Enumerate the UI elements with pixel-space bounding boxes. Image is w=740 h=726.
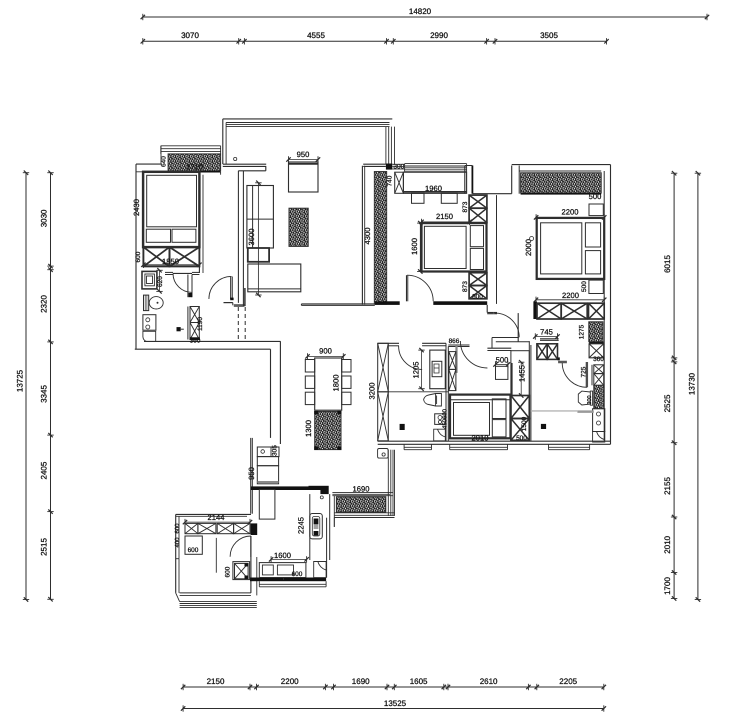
svg-text:4300: 4300	[363, 228, 372, 245]
svg-text:2200: 2200	[562, 208, 579, 217]
svg-text:1960: 1960	[425, 184, 442, 193]
svg-text:2150: 2150	[436, 212, 453, 221]
svg-text:2430: 2430	[132, 199, 141, 216]
svg-text:1455: 1455	[518, 365, 527, 382]
svg-text:740: 740	[387, 175, 394, 186]
svg-text:2000: 2000	[524, 239, 533, 256]
svg-text:2200: 2200	[281, 677, 299, 686]
svg-text:2405: 2405	[40, 461, 49, 479]
svg-text:620: 620	[157, 276, 164, 287]
svg-text:2010: 2010	[663, 535, 672, 553]
svg-text:1700: 1700	[663, 577, 672, 595]
svg-text:600: 600	[188, 547, 199, 554]
svg-text:500: 500	[516, 435, 527, 442]
svg-text:360: 360	[190, 338, 201, 345]
svg-text:450: 450	[441, 418, 448, 429]
svg-text:13730: 13730	[688, 372, 697, 395]
svg-text:2010: 2010	[472, 434, 489, 443]
svg-text:3345: 3345	[40, 385, 49, 403]
svg-text:305: 305	[272, 445, 279, 456]
svg-text:1800: 1800	[332, 375, 341, 392]
svg-text:3600: 3600	[247, 229, 256, 246]
svg-text:3070: 3070	[181, 31, 199, 40]
svg-text:600: 600	[441, 408, 448, 419]
svg-text:1600: 1600	[274, 551, 291, 560]
svg-text:360: 360	[593, 356, 604, 363]
svg-text:2245: 2245	[297, 517, 306, 534]
svg-text:1500: 1500	[521, 416, 528, 431]
svg-text:2515: 2515	[40, 538, 49, 556]
svg-text:873: 873	[462, 201, 469, 212]
svg-text:600: 600	[225, 566, 232, 577]
svg-text:3505: 3505	[540, 31, 558, 40]
svg-text:1275: 1275	[579, 324, 586, 339]
svg-text:800: 800	[472, 294, 483, 301]
svg-text:1205: 1205	[412, 362, 421, 379]
svg-text:2144: 2144	[208, 513, 225, 522]
svg-text:1710: 1710	[186, 163, 203, 172]
svg-text:2990: 2990	[430, 31, 448, 40]
svg-text:2320: 2320	[40, 295, 49, 313]
svg-text:900: 900	[319, 347, 332, 356]
svg-text:950: 950	[247, 467, 256, 480]
svg-text:2205: 2205	[559, 677, 577, 686]
svg-text:2610: 2610	[480, 677, 498, 686]
svg-text:600: 600	[292, 571, 303, 578]
svg-text:500: 500	[589, 192, 602, 201]
svg-text:745: 745	[540, 328, 553, 337]
svg-text:1300: 1300	[304, 420, 313, 437]
svg-text:2150: 2150	[207, 677, 225, 686]
svg-text:600: 600	[135, 251, 142, 262]
svg-text:950: 950	[297, 150, 310, 159]
svg-text:1600: 1600	[410, 238, 419, 255]
svg-text:500: 500	[496, 356, 509, 365]
svg-text:1690: 1690	[352, 677, 370, 686]
svg-text:1690: 1690	[353, 485, 370, 494]
svg-text:3200: 3200	[368, 383, 377, 400]
svg-text:873: 873	[462, 281, 469, 292]
svg-text:1190: 1190	[197, 317, 204, 331]
svg-text:2525: 2525	[663, 394, 672, 412]
svg-text:500: 500	[581, 281, 588, 292]
svg-text:866: 866	[449, 338, 460, 345]
svg-text:300: 300	[587, 395, 593, 404]
svg-text:4555: 4555	[307, 31, 325, 40]
svg-text:2200: 2200	[562, 291, 579, 300]
svg-text:1605: 1605	[410, 677, 428, 686]
svg-text:6015: 6015	[663, 255, 672, 273]
svg-text:600: 600	[174, 523, 181, 534]
svg-text:3030: 3030	[40, 209, 49, 227]
svg-text:13525: 13525	[384, 699, 407, 708]
svg-text:2155: 2155	[663, 477, 672, 495]
svg-text:400: 400	[174, 537, 181, 548]
svg-text:13725: 13725	[16, 369, 25, 392]
svg-text:14820: 14820	[409, 7, 432, 16]
